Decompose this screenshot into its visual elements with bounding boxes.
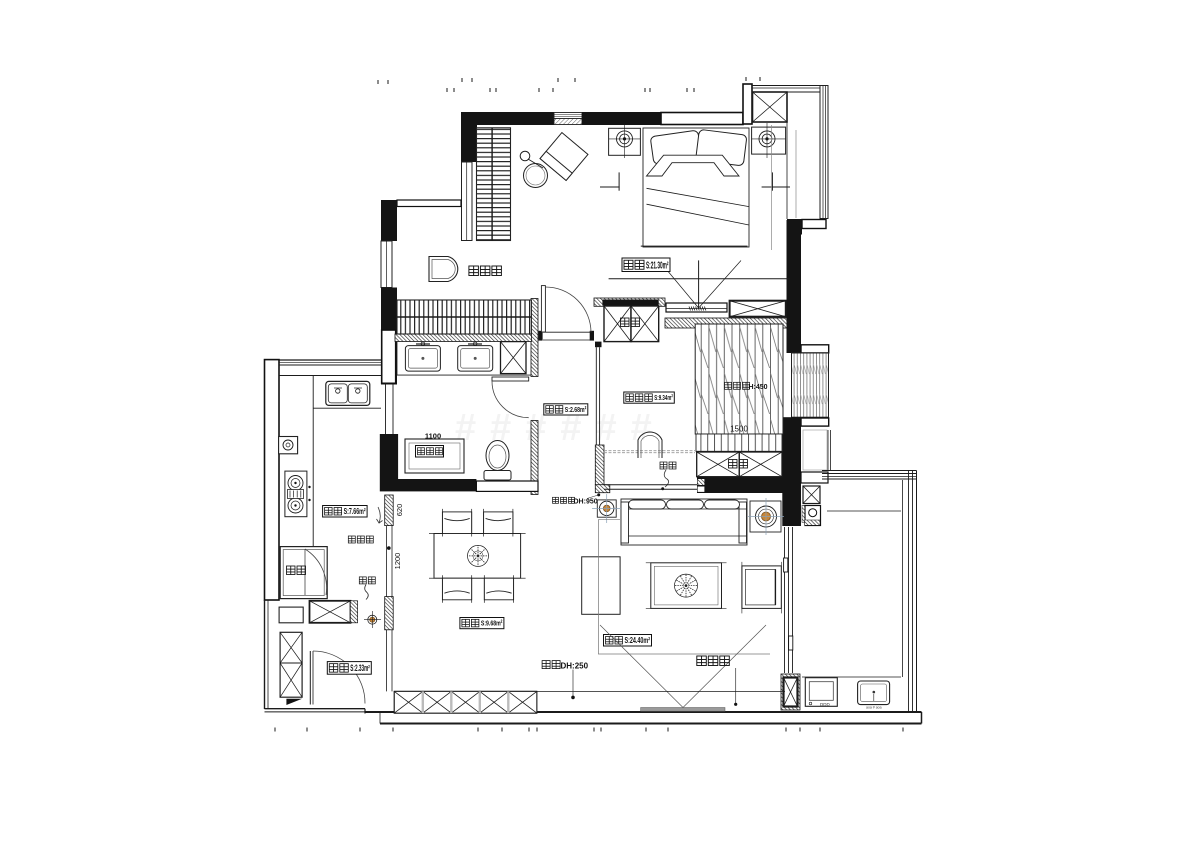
svg-text:S:21.30m²: S:21.30m² [646, 261, 669, 272]
svg-text:S:9.68m²: S:9.68m² [481, 619, 503, 628]
svg-text:S:2.33m²: S:2.33m² [350, 663, 370, 673]
svg-text:1500: 1500 [730, 425, 748, 434]
svg-text:DH:950: DH:950 [574, 499, 598, 506]
svg-text:1200: 1200 [393, 553, 402, 570]
svg-text:S:24.40m²: S:24.40m² [625, 636, 651, 645]
svg-text:DH:250: DH:250 [561, 662, 589, 671]
svg-text:S:2.68m²: S:2.68m² [565, 405, 587, 414]
svg-text:S:9.34m²: S:9.34m² [654, 393, 673, 402]
svg-text:DDD: DDD [820, 702, 830, 707]
svg-text:aoa # aoa: aoa # aoa [866, 706, 882, 710]
svg-text:1100: 1100 [425, 432, 441, 441]
svg-text:620: 620 [395, 504, 404, 517]
svg-text:S:7.66m²: S:7.66m² [344, 507, 366, 516]
svg-text:H:450: H:450 [749, 384, 768, 391]
